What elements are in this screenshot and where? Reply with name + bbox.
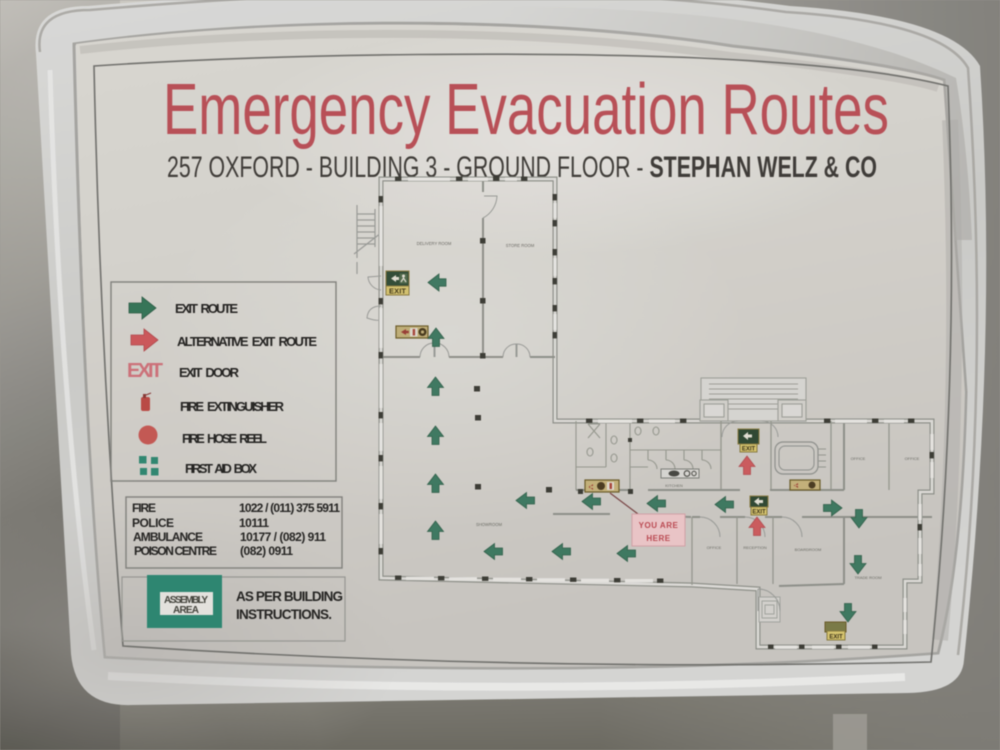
svg-text:STORE ROOM: STORE ROOM bbox=[506, 243, 535, 248]
svg-text:POISON CENTRE: POISON CENTRE bbox=[134, 544, 217, 558]
svg-text:FIRST AID BOX: FIRST AID BOX bbox=[185, 461, 257, 476]
svg-text:OFFICE: OFFICE bbox=[707, 545, 722, 550]
svg-text:Emergency Evacuation Routes: Emergency Evacuation Routes bbox=[163, 70, 889, 150]
svg-text:OFFICE: OFFICE bbox=[905, 456, 920, 461]
svg-text:1022 / (011) 375 5911: 1022 / (011) 375 5911 bbox=[239, 501, 340, 515]
svg-text:YOU ARE: YOU ARE bbox=[639, 521, 679, 530]
svg-text:RECEPTION: RECEPTION bbox=[743, 545, 766, 550]
svg-text:FIRE: FIRE bbox=[132, 501, 156, 515]
svg-text:FIRE EXTINGUISHER: FIRE EXTINGUISHER bbox=[180, 399, 285, 414]
svg-text:INSTRUCTIONS.: INSTRUCTIONS. bbox=[236, 607, 332, 622]
svg-text:DELIVERY ROOM: DELIVERY ROOM bbox=[417, 241, 452, 246]
svg-text:EXIT: EXIT bbox=[127, 360, 164, 382]
svg-text:EXIT: EXIT bbox=[742, 447, 756, 453]
svg-text:SHOWROOM: SHOWROOM bbox=[476, 522, 503, 527]
svg-text:AMBULANCE: AMBULANCE bbox=[133, 530, 203, 544]
svg-text:EXIT: EXIT bbox=[829, 635, 843, 641]
svg-text:TRADE ROOM: TRADE ROOM bbox=[854, 575, 881, 580]
svg-text:AS PER BUILDING: AS PER BUILDING bbox=[236, 589, 343, 604]
svg-text:EXIT: EXIT bbox=[389, 287, 406, 296]
svg-text:EXIT: EXIT bbox=[752, 510, 766, 516]
svg-text:FIRE HOSE REEL: FIRE HOSE REEL bbox=[182, 431, 267, 446]
svg-text:ALTERNATIVE EXIT ROUTE: ALTERNATIVE EXIT ROUTE bbox=[177, 334, 317, 349]
svg-text:EXIT ROUTE: EXIT ROUTE bbox=[175, 301, 238, 316]
svg-text:(082) 0911: (082) 0911 bbox=[240, 544, 293, 558]
svg-text:10111: 10111 bbox=[239, 516, 269, 530]
svg-text:BOARDROOM: BOARDROOM bbox=[795, 547, 822, 552]
svg-text:AREA: AREA bbox=[173, 605, 199, 616]
svg-text:KITCHEN: KITCHEN bbox=[665, 483, 683, 488]
svg-text:10177 / (082) 911: 10177 / (082) 911 bbox=[240, 530, 326, 544]
svg-text:OFFICE: OFFICE bbox=[851, 456, 866, 461]
svg-text:HERE: HERE bbox=[646, 534, 670, 543]
svg-text:POLICE: POLICE bbox=[132, 516, 174, 530]
svg-text:EXIT DOOR: EXIT DOOR bbox=[179, 365, 240, 380]
